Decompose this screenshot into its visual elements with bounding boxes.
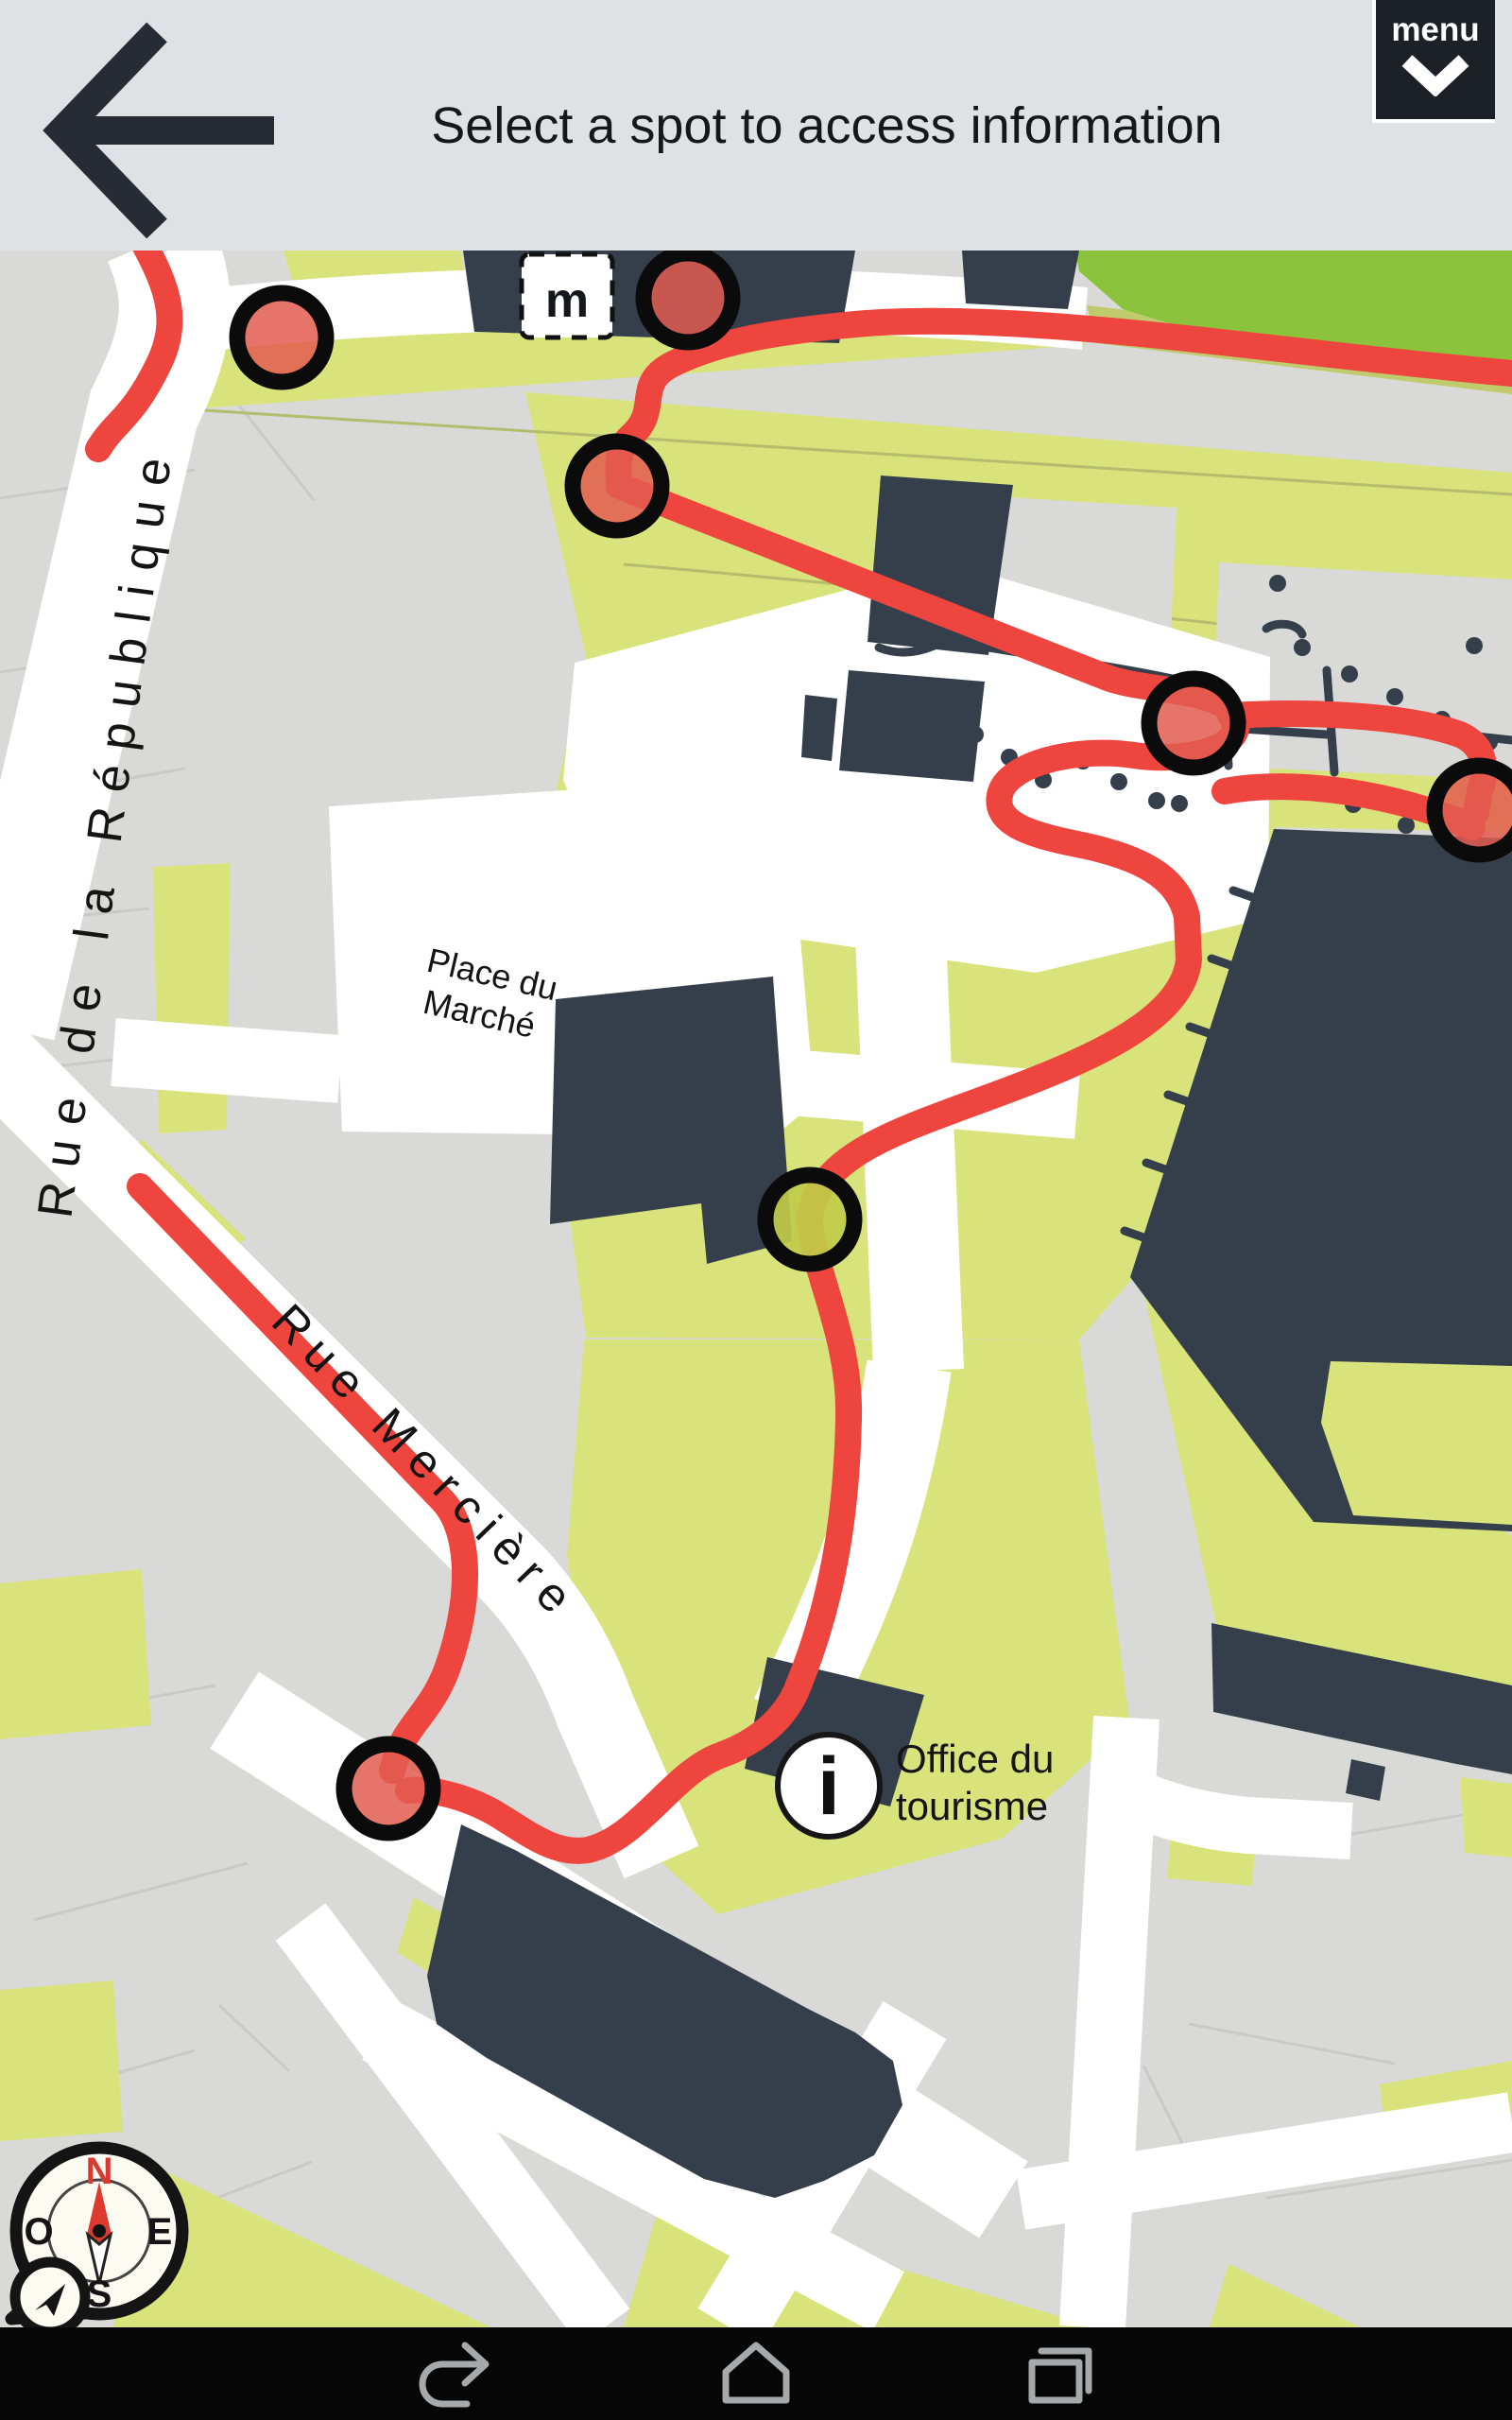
spot-marker[interactable] (1435, 766, 1512, 855)
map-container: m i Office du tourisme Rue de la Républi… (0, 251, 1512, 2327)
compass-south: S (87, 2273, 112, 2315)
nav-recents-icon[interactable] (1032, 2351, 1089, 2400)
nav-back-icon[interactable] (422, 2345, 486, 2404)
info-glyph: i (817, 1741, 840, 1832)
spot-marker[interactable] (644, 253, 732, 342)
compass-west: O (24, 2211, 53, 2253)
back-button[interactable] (17, 21, 291, 240)
android-navbar (0, 2327, 1512, 2420)
locate-button[interactable] (15, 2262, 85, 2327)
menu-button[interactable]: menu (1372, 0, 1495, 123)
spot-marker[interactable] (237, 293, 326, 382)
map-canvas[interactable]: m i Office du tourisme Rue de la Républi… (0, 251, 1512, 2327)
monument-icon[interactable]: m (522, 254, 612, 337)
office-label-line2: tourisme (896, 1784, 1048, 1828)
app-screen: m i Office du tourisme Rue de la Républi… (0, 0, 1512, 2420)
monument-glyph: m (545, 273, 589, 328)
menu-label: menu (1376, 11, 1495, 49)
compass-north: N (86, 2151, 113, 2192)
back-arrow-icon (62, 32, 274, 229)
nav-home-icon[interactable] (726, 2345, 786, 2400)
header-bar: Select a spot to access information menu (0, 0, 1512, 251)
compass-east: E (147, 2211, 173, 2253)
chevron-down-icon (1398, 53, 1473, 96)
spot-marker[interactable] (344, 1744, 433, 1833)
spot-marker[interactable] (765, 1175, 854, 1264)
tourist-office[interactable]: i Office du tourisme (778, 1735, 1054, 1837)
spot-marker[interactable] (573, 441, 661, 530)
page-title: Select a spot to access information (293, 96, 1361, 155)
office-label-line1: Office du (896, 1737, 1054, 1781)
spot-marker[interactable] (1149, 679, 1238, 768)
